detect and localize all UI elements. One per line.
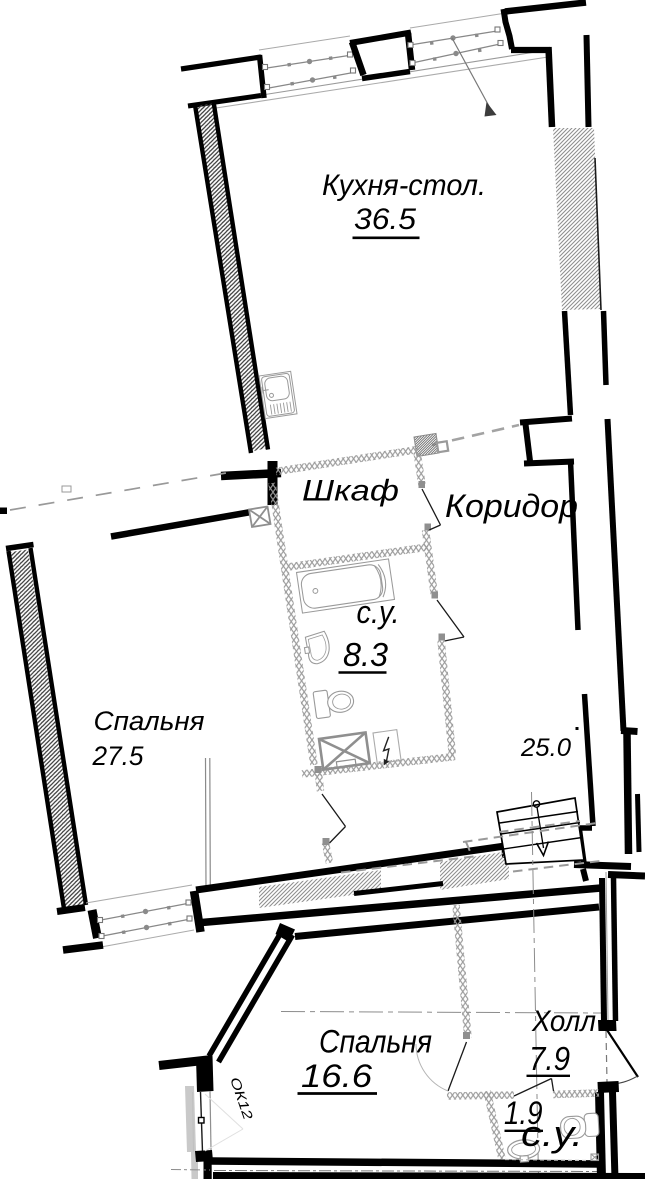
svg-text:с.у.: с.у. [357,594,400,630]
svg-text:Шкаф: Шкаф [302,475,399,508]
svg-text:Коридор: Коридор [445,488,578,524]
svg-text:27.5: 27.5 [92,741,145,771]
svg-text:25.0: 25.0 [520,734,571,762]
svg-text:36.5: 36.5 [354,203,416,236]
svg-text:Кухня-стол.: Кухня-стол. [322,169,486,202]
svg-text:7.9: 7.9 [529,1040,570,1077]
svg-text:с.у.: с.у. [521,1113,583,1154]
svg-text:Спальня: Спальня [319,1024,432,1060]
svg-text:16.6: 16.6 [301,1058,372,1094]
svg-text:Холл: Холл [531,1005,596,1038]
svg-text:Спальня: Спальня [94,706,205,736]
svg-text:8.3: 8.3 [343,636,389,673]
